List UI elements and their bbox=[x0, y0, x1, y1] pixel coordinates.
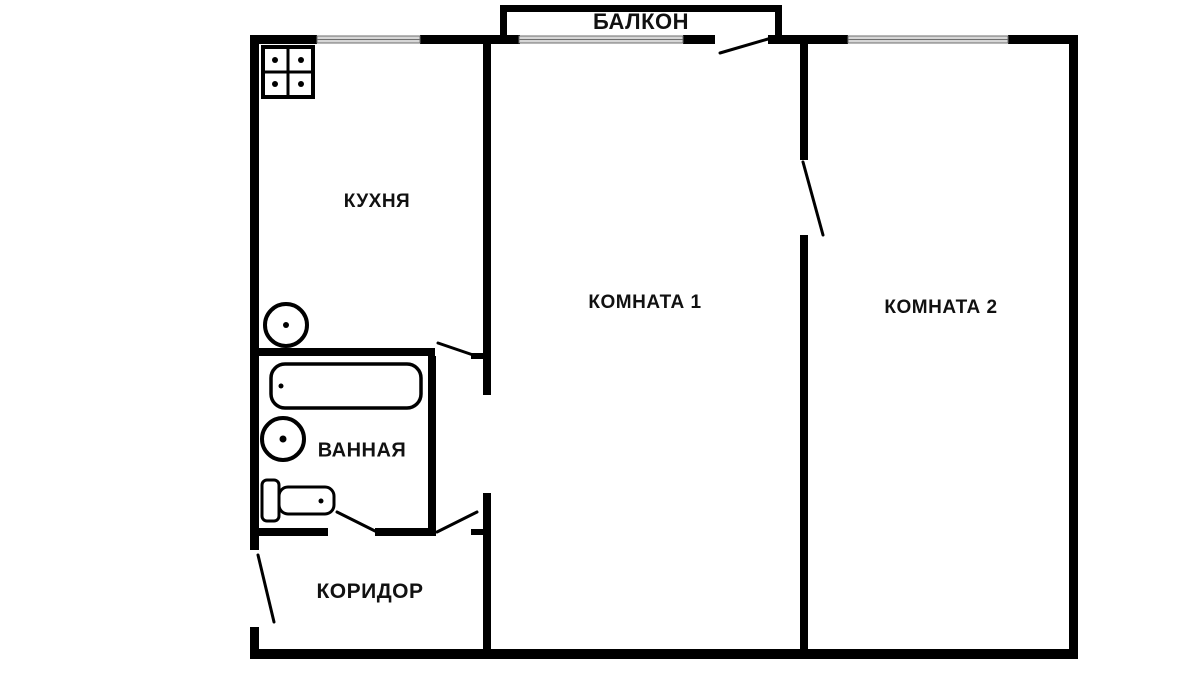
top-wall-kitchen-left bbox=[250, 35, 317, 44]
toilet-bowl-icon-drain bbox=[319, 499, 324, 504]
balcony-right-wall bbox=[775, 5, 782, 36]
top-wall-kitchen-right bbox=[420, 35, 520, 44]
room1-room2-wall-lower bbox=[800, 235, 808, 649]
kitchen-bathroom-wall bbox=[259, 348, 435, 356]
bottom-wall bbox=[250, 649, 1078, 659]
bathtub-icon-drain bbox=[279, 384, 284, 389]
kitchen-door-swing bbox=[438, 343, 479, 357]
balcony-door-swing bbox=[720, 39, 768, 53]
bathroom-corridor-wall-left bbox=[259, 528, 328, 536]
bathroom-corridor-wall-right bbox=[375, 528, 436, 536]
corridor-label: КОРИДОР bbox=[316, 580, 423, 604]
room1-label: КОМНАТА 1 bbox=[588, 292, 701, 314]
stove-icon-burner bbox=[298, 57, 304, 63]
corridor-door-jamb-tick bbox=[471, 529, 483, 535]
bathroom-door-swing bbox=[337, 512, 375, 531]
room1-room2-wall-upper bbox=[800, 44, 808, 160]
kitchen-room1-wall-upper bbox=[483, 44, 491, 395]
toilet-tank-icon bbox=[262, 480, 279, 521]
floor-plan-svg bbox=[0, 0, 1200, 674]
right-wall bbox=[1069, 35, 1078, 659]
stove-icon-burner bbox=[272, 81, 278, 87]
top-wall-room2-right bbox=[1008, 35, 1078, 44]
bathroom-right-wall bbox=[428, 356, 436, 536]
bathroom-label: ВАННАЯ bbox=[318, 440, 407, 463]
bathroom-sink-icon-drain bbox=[280, 436, 287, 443]
balcony-label: БАЛКОН bbox=[593, 9, 689, 35]
toilet-bowl-icon bbox=[279, 487, 334, 514]
room2-label: КОМНАТА 2 bbox=[884, 297, 997, 319]
kitchen-room1-wall-lower bbox=[483, 493, 491, 649]
bathtub-icon bbox=[271, 364, 421, 408]
top-wall-between-balcony-room2 bbox=[768, 35, 848, 44]
entrance-door-swing bbox=[258, 555, 274, 622]
kitchen-sink-icon-drain bbox=[283, 322, 289, 328]
top-wall-room1-right bbox=[683, 35, 715, 44]
kitchen-label: КУХНЯ bbox=[344, 191, 410, 213]
floor-plan-page: БАЛКОН КУХНЯ КОМНАТА 1 КОМНАТА 2 ВАННАЯ … bbox=[0, 0, 1200, 674]
room1-room2-door-swing bbox=[803, 162, 823, 235]
stove-icon-burner bbox=[298, 81, 304, 87]
left-wall-upper bbox=[250, 35, 259, 550]
stove-icon-burner bbox=[272, 57, 278, 63]
